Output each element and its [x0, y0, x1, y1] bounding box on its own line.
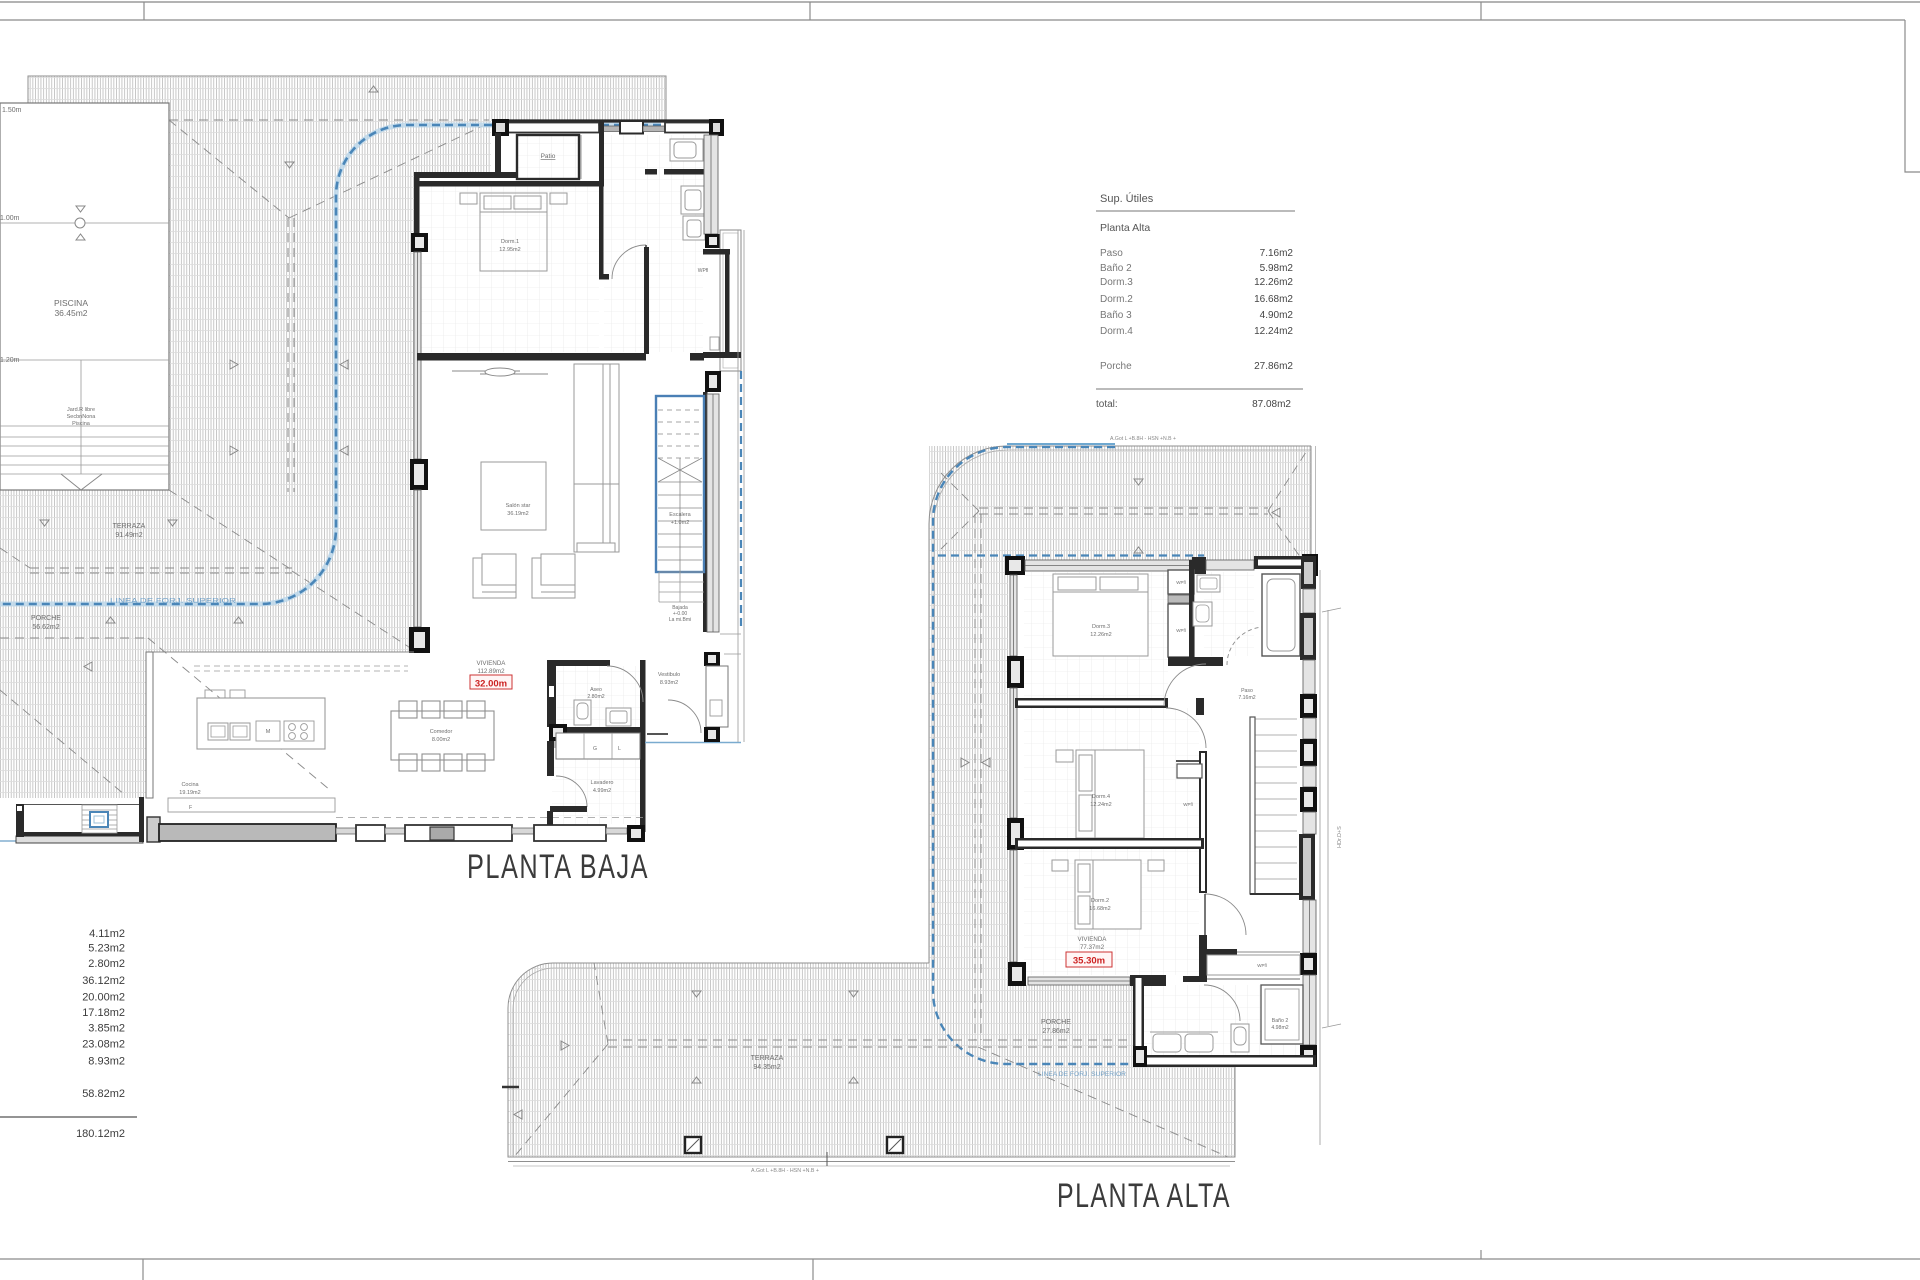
svg-text:3.85m2: 3.85m2 — [88, 1023, 125, 1035]
svg-text:35.30m: 35.30m — [1073, 956, 1105, 967]
svg-text:WPfl: WPfl — [1176, 580, 1186, 585]
svg-text:1.20m: 1.20m — [0, 357, 20, 364]
svg-text:Dorm.1: Dorm.1 — [501, 239, 519, 245]
svg-text:Comedor: Comedor — [430, 729, 453, 735]
svg-text:PLANTA ALTA: PLANTA ALTA — [1057, 1177, 1231, 1215]
svg-text:36.12m2: 36.12m2 — [82, 975, 125, 987]
svg-text:2.80m2: 2.80m2 — [587, 694, 604, 700]
svg-text:Escalera: Escalera — [669, 512, 691, 518]
svg-text:8.93m2: 8.93m2 — [660, 680, 678, 686]
svg-text:12.26m2: 12.26m2 — [1090, 632, 1111, 638]
svg-text:A.Got L +B.8H - HSN +N.B +: A.Got L +B.8H - HSN +N.B + — [1110, 436, 1176, 442]
svg-text:A.Got L +B.8H - HSN +N.B +: A.Got L +B.8H - HSN +N.B + — [751, 1168, 819, 1174]
svg-text:32.00m: 32.00m — [475, 679, 507, 690]
svg-text:G: G — [593, 746, 597, 752]
svg-text:PISCINA: PISCINA — [54, 298, 88, 308]
svg-text:total:: total: — [1096, 399, 1118, 410]
svg-text:Sup. Útiles: Sup. Útiles — [1100, 192, 1154, 205]
svg-text:87.08m2: 87.08m2 — [1252, 399, 1291, 410]
svg-text:TERRAZA: TERRAZA — [113, 523, 146, 530]
svg-text:WPfl: WPfl — [1183, 802, 1193, 807]
svg-text:LINEA DE FORJ. SUPERIOR: LINEA DE FORJ. SUPERIOR — [1038, 1072, 1127, 1078]
svg-text:12.26m2: 12.26m2 — [1254, 277, 1293, 288]
svg-text:WPfl: WPfl — [698, 268, 709, 274]
svg-text:5.98m2: 5.98m2 — [1260, 263, 1294, 274]
svg-text:91.49m2: 91.49m2 — [115, 532, 142, 539]
svg-text:Baño 2: Baño 2 — [1100, 263, 1132, 274]
svg-text:Salón star: Salón star — [506, 503, 531, 509]
svg-text:M: M — [266, 729, 271, 735]
svg-text:+1.0m2: +1.0m2 — [671, 520, 690, 526]
svg-text:27.86m2: 27.86m2 — [1254, 361, 1293, 372]
svg-text:4.11m2: 4.11m2 — [89, 928, 125, 940]
svg-text:77.37m2: 77.37m2 — [1080, 944, 1105, 951]
svg-text:Dorm.3: Dorm.3 — [1100, 277, 1133, 288]
svg-text:Baño 2: Baño 2 — [1272, 1018, 1289, 1024]
svg-text:1.50m: 1.50m — [2, 107, 22, 114]
svg-text:19.19m2: 19.19m2 — [179, 790, 200, 796]
svg-text:Vestibulo: Vestibulo — [658, 672, 680, 678]
svg-text:56.62m2: 56.62m2 — [32, 624, 59, 631]
svg-text:WPfl: WPfl — [1176, 628, 1186, 633]
svg-text:12.24m2: 12.24m2 — [1254, 326, 1293, 337]
svg-text:PORCHE: PORCHE — [31, 615, 61, 622]
svg-text:VIVIENDA: VIVIENDA — [477, 660, 507, 667]
svg-text:16.68m2: 16.68m2 — [1254, 294, 1293, 305]
svg-text:7.16m2: 7.16m2 — [1238, 695, 1255, 701]
svg-text:20.00m2: 20.00m2 — [82, 992, 125, 1004]
svg-text:HDr.D+S: HDr.D+S — [1337, 826, 1343, 848]
svg-text:Porche: Porche — [1100, 361, 1132, 372]
svg-text:Planta Alta: Planta Alta — [1100, 222, 1150, 234]
svg-text:Dorm.4: Dorm.4 — [1092, 794, 1110, 800]
svg-text:VIVIENDA: VIVIENDA — [1078, 936, 1108, 943]
svg-text:4.90m2: 4.90m2 — [1260, 310, 1294, 321]
svg-text:8.93m2: 8.93m2 — [88, 1056, 125, 1068]
svg-text:Paso: Paso — [1100, 248, 1123, 259]
svg-text:La mi.Bmi: La mi.Bmi — [669, 617, 691, 623]
svg-text:Baño 3: Baño 3 — [1100, 310, 1132, 321]
svg-text:Cocina: Cocina — [181, 782, 199, 788]
svg-text:Dorm.2: Dorm.2 — [1091, 898, 1109, 904]
svg-text:4.99m2: 4.99m2 — [593, 788, 611, 794]
svg-text:94.35m2: 94.35m2 — [753, 1064, 780, 1071]
svg-text:112.89m2: 112.89m2 — [477, 668, 505, 675]
svg-text:27.86m2: 27.86m2 — [1042, 1028, 1069, 1035]
svg-text:36.19m2: 36.19m2 — [507, 511, 528, 517]
svg-text:58.82m2: 58.82m2 — [82, 1088, 125, 1100]
svg-text:Paso: Paso — [1241, 688, 1253, 694]
svg-text:PORCHE: PORCHE — [1041, 1019, 1071, 1026]
svg-text:36.45m2: 36.45m2 — [54, 308, 87, 318]
svg-text:Patio: Patio — [541, 153, 556, 160]
svg-text:Dorm.3: Dorm.3 — [1092, 624, 1110, 630]
svg-text:LINEA DE FORJ. SUPERIOR: LINEA DE FORJ. SUPERIOR — [110, 598, 236, 605]
svg-text:1.00m: 1.00m — [0, 215, 20, 222]
svg-text:8.00m2: 8.00m2 — [432, 737, 450, 743]
svg-text:Aseo: Aseo — [590, 687, 602, 693]
svg-text:WPfl: WPfl — [1257, 963, 1267, 968]
svg-text:12.95m2: 12.95m2 — [499, 247, 520, 253]
svg-text:TERRAZA: TERRAZA — [751, 1055, 784, 1062]
svg-text:Jard.R libre: Jard.R libre — [67, 407, 95, 413]
svg-text:17.18m2: 17.18m2 — [82, 1007, 125, 1019]
svg-text:4.98m2: 4.98m2 — [1271, 1025, 1288, 1031]
svg-text:F: F — [189, 805, 192, 811]
svg-text:L: L — [618, 746, 621, 752]
svg-text:180.12m2: 180.12m2 — [76, 1128, 125, 1140]
svg-text:Lavadero: Lavadero — [591, 780, 614, 786]
svg-text:2.80m2: 2.80m2 — [88, 958, 125, 970]
svg-text:SecbnNona: SecbnNona — [67, 414, 97, 420]
svg-text:23.08m2: 23.08m2 — [82, 1039, 125, 1051]
svg-text:PLANTA BAJA: PLANTA BAJA — [467, 848, 649, 886]
svg-text:Dorm.2: Dorm.2 — [1100, 294, 1133, 305]
svg-text:12.24m2: 12.24m2 — [1090, 802, 1111, 808]
svg-text:5.23m2: 5.23m2 — [88, 943, 125, 955]
svg-text:Piscina: Piscina — [72, 421, 91, 427]
svg-text:7.16m2: 7.16m2 — [1260, 248, 1294, 259]
svg-text:Dorm.4: Dorm.4 — [1100, 326, 1133, 337]
svg-text:16.68m2: 16.68m2 — [1089, 906, 1110, 912]
